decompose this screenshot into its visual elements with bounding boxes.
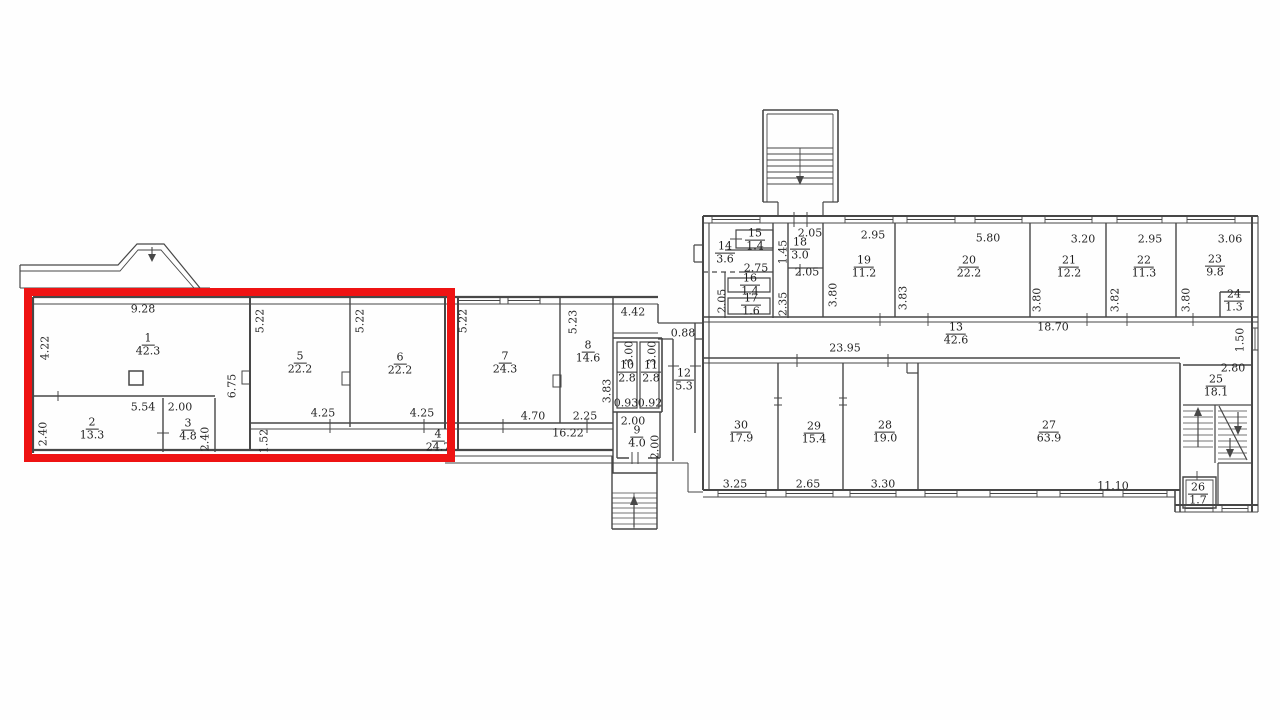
dim-label: 0.92 [638,397,663,410]
dim-label: 2.95 [861,229,886,242]
dim-label: 2.00 [649,435,662,460]
dim-label: 2.80 [1221,362,1246,375]
room-label-9: 94.0 [628,425,646,450]
dim-label: 0.93 [614,397,639,410]
room-label-7: 724.3 [493,351,518,376]
room-label-23: 239.8 [1205,254,1225,279]
dim-label: 3.80 [827,283,840,308]
dim-label: 2.65 [796,478,821,491]
dim-label: 2.75 [744,262,769,275]
dim-label: 3.06 [1218,233,1243,246]
dim-label: 5.80 [976,232,1001,245]
room-label-22: 2211.3 [1132,255,1157,280]
dim-label: 3.20 [1071,233,1096,246]
room-label-21: 2112.2 [1057,255,1082,280]
room-label-8: 814.6 [576,340,601,365]
dim-label: 16.22 [552,427,584,440]
room-label-26: 261.7 [1188,482,1208,507]
dim-label: 2.05 [798,227,823,240]
highlight-rectangle [24,288,455,462]
room-label-30: 3017.9 [729,420,754,445]
room-label-29: 2915.4 [802,421,827,446]
dim-label: 1.45 [777,240,790,265]
dim-label: 3.83 [897,286,910,311]
dim-label: 3.80 [1031,288,1044,313]
dim-label: 2.35 [777,292,790,317]
dim-label: 2.95 [1138,233,1163,246]
dim-label: 23.95 [829,342,861,355]
dim-label: 1.50 [1234,328,1247,353]
dim-label: 2.25 [573,410,598,423]
dim-label: 3.00 [646,341,659,366]
room-label-14: 143.6 [715,241,735,266]
dim-label: 2.05 [716,289,729,314]
room-label-20: 2022.2 [957,255,982,280]
room-label-28: 2819.0 [873,420,898,445]
dim-label: 5.23 [567,310,580,335]
room-label-27: 2763.9 [1037,420,1062,445]
dim-label: 3.00 [623,341,636,366]
dim-label: 5.22 [457,309,470,334]
dim-label: 3.83 [601,379,614,404]
dim-label: 3.82 [1109,288,1122,313]
dim-label: 11.10 [1097,480,1129,493]
room-label-13: 1342.6 [944,322,969,347]
dim-label: 0.88 [671,327,696,340]
dim-label: 2.00 [621,415,646,428]
dim-label: 3.80 [1180,288,1193,313]
dim-label: 3.30 [871,478,896,491]
room-label-12: 125.3 [674,368,694,393]
dim-label: 4.70 [521,410,546,423]
room-label-18: 183.0 [790,237,810,262]
dim-label: 4.42 [621,306,646,319]
dim-label: 18.70 [1037,321,1069,334]
floor-plan-page: 142.3 213.3 34.8 424.7 522.2 622.2 724.3… [0,0,1280,720]
room-label-25: 2518.1 [1204,374,1229,399]
room-label-19: 1911.2 [852,255,877,280]
room-label-24: 241.3 [1224,289,1244,314]
dim-label: 2.05 [795,266,820,279]
room-label-17: 171.6 [741,293,761,318]
room-label-15: 151.4 [745,228,765,253]
dim-label: 3.25 [723,478,748,491]
